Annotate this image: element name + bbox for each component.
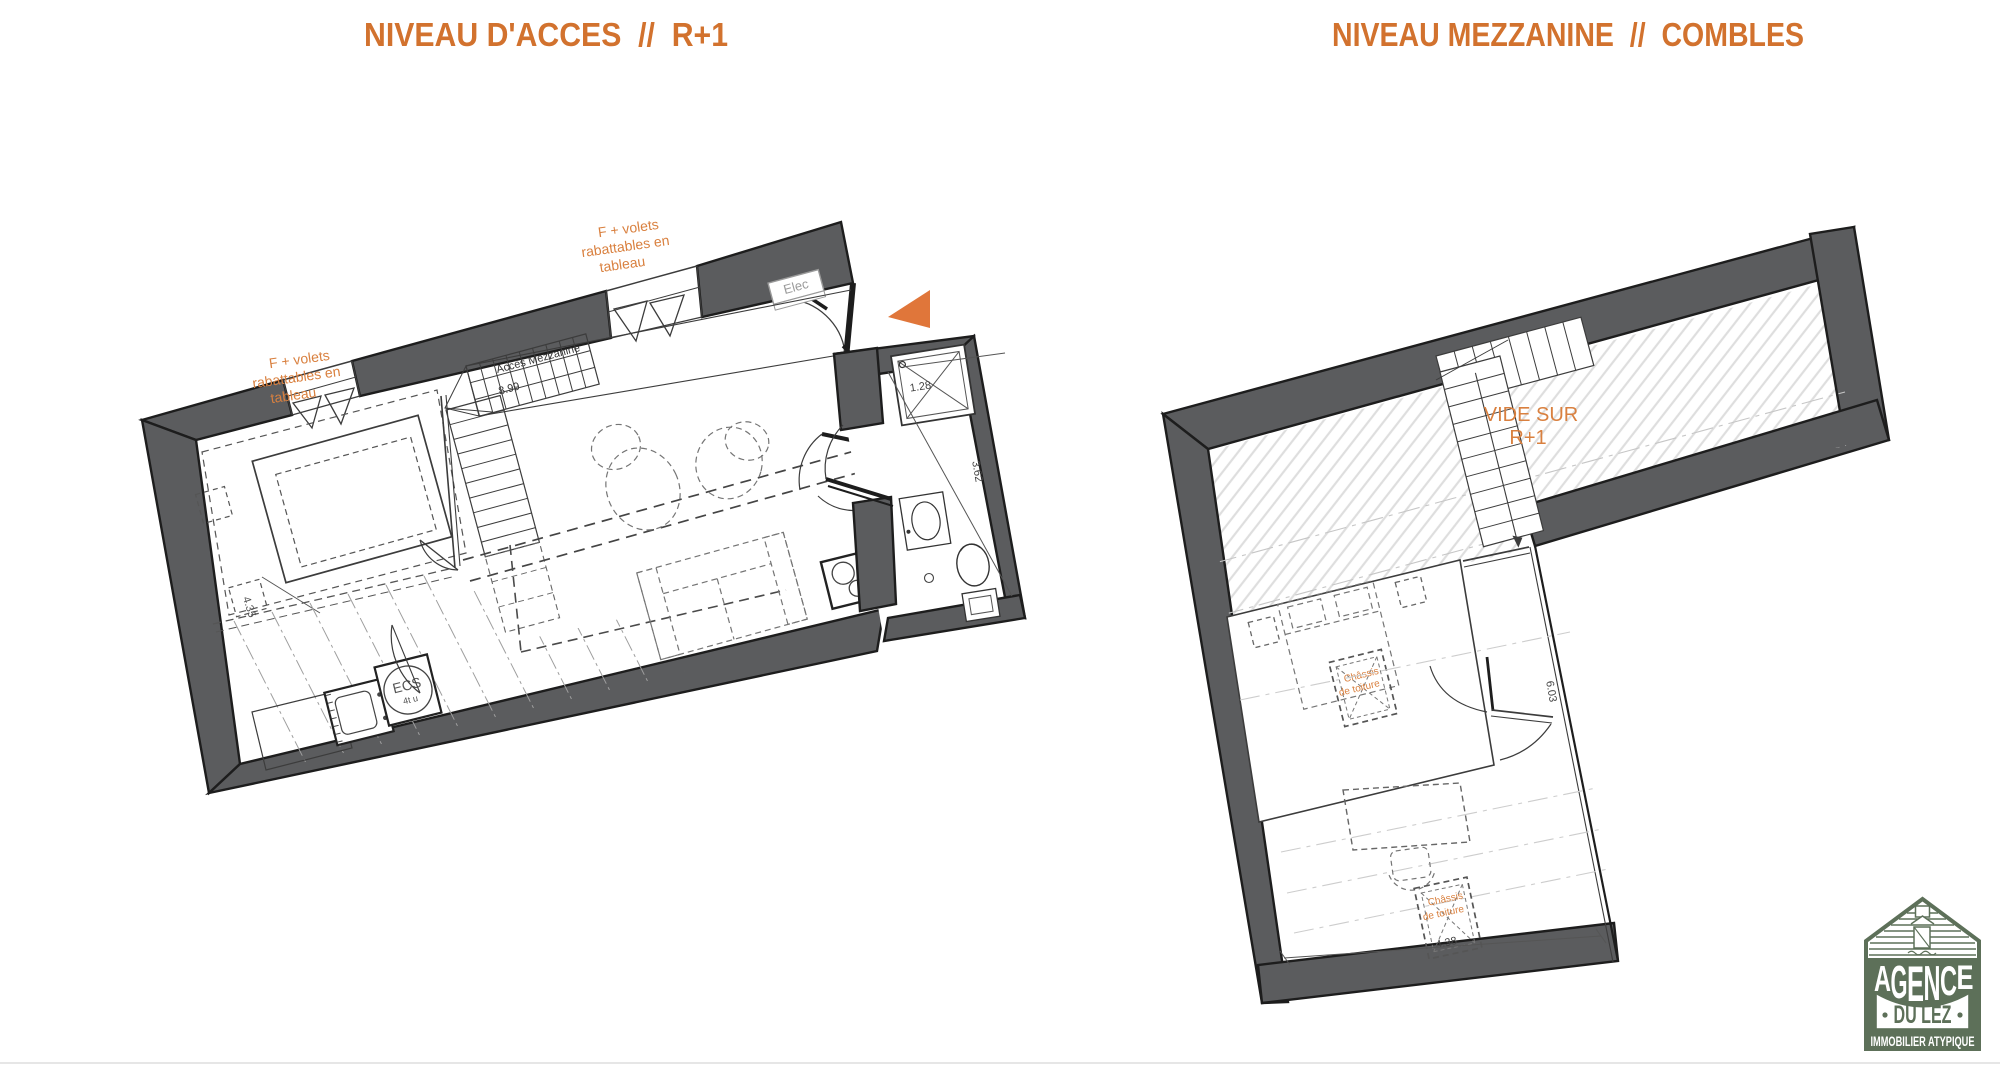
svg-text:DU LEZ: DU LEZ (1894, 1001, 1952, 1029)
svg-text:C: C (1940, 958, 1957, 1005)
svg-text:NIVEAU D'ACCES // R+1: NIVEAU D'ACCES // R+1 (364, 16, 728, 53)
svg-text:E: E (1956, 960, 1973, 997)
svg-text:IMMOBILIER ATYPIQUE: IMMOBILIER ATYPIQUE (1871, 1034, 1975, 1049)
svg-text:VIDE SUR: VIDE SUR (1484, 404, 1578, 426)
svg-text:A: A (1874, 959, 1891, 999)
svg-text:R+1: R+1 (1509, 427, 1546, 449)
svg-text:NIVEAU MEZZANINE // COMBLES: NIVEAU MEZZANINE // COMBLES (1332, 16, 1804, 53)
